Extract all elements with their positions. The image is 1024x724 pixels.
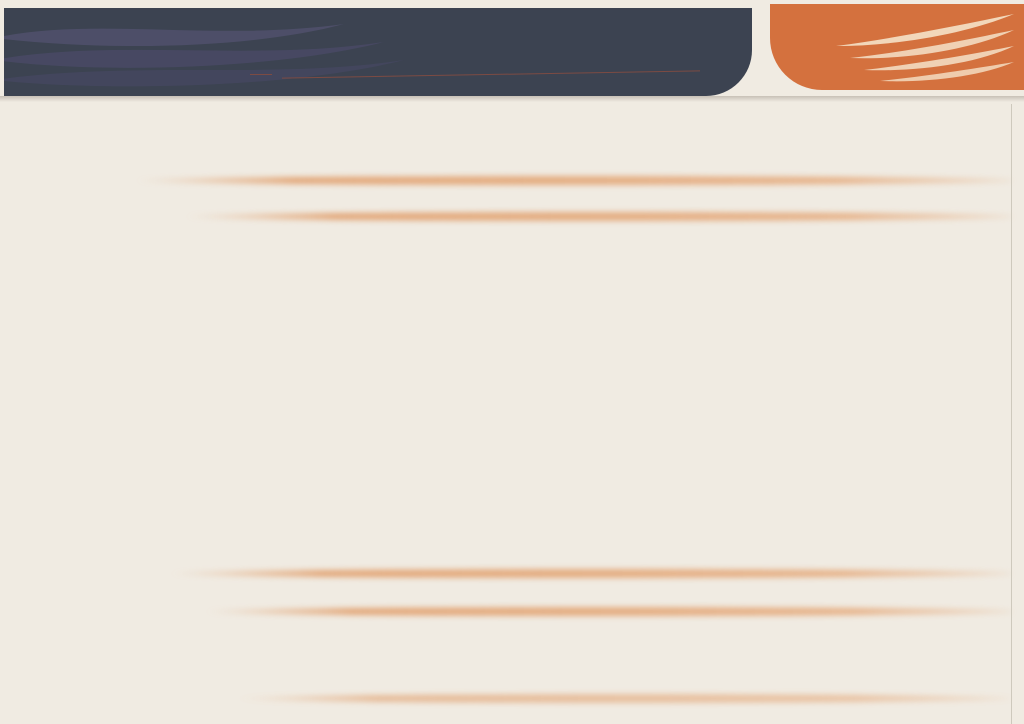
tagline-waves-icon (836, 12, 1016, 84)
brand-waves-icon (4, 8, 434, 96)
brochure-page: { "header": { "brand": "THE MRT-CITY", "… (0, 0, 1024, 724)
subtitle-line-left (250, 74, 272, 75)
streak-decoration (235, 694, 1011, 703)
streak-decoration (185, 212, 1013, 221)
title-subtitle (250, 74, 700, 75)
top-unit-area-row (0, 190, 1024, 210)
streak-decoration (170, 569, 1012, 578)
streak-decoration (135, 176, 1013, 185)
page-edge-line (1011, 104, 1012, 724)
floor-plan (55, 252, 925, 552)
header-shadow (0, 96, 1024, 102)
header-band (4, 8, 752, 96)
tagline-band (770, 4, 1024, 90)
bottom-unit-area-row (0, 585, 1024, 605)
streak-decoration (205, 607, 1013, 616)
